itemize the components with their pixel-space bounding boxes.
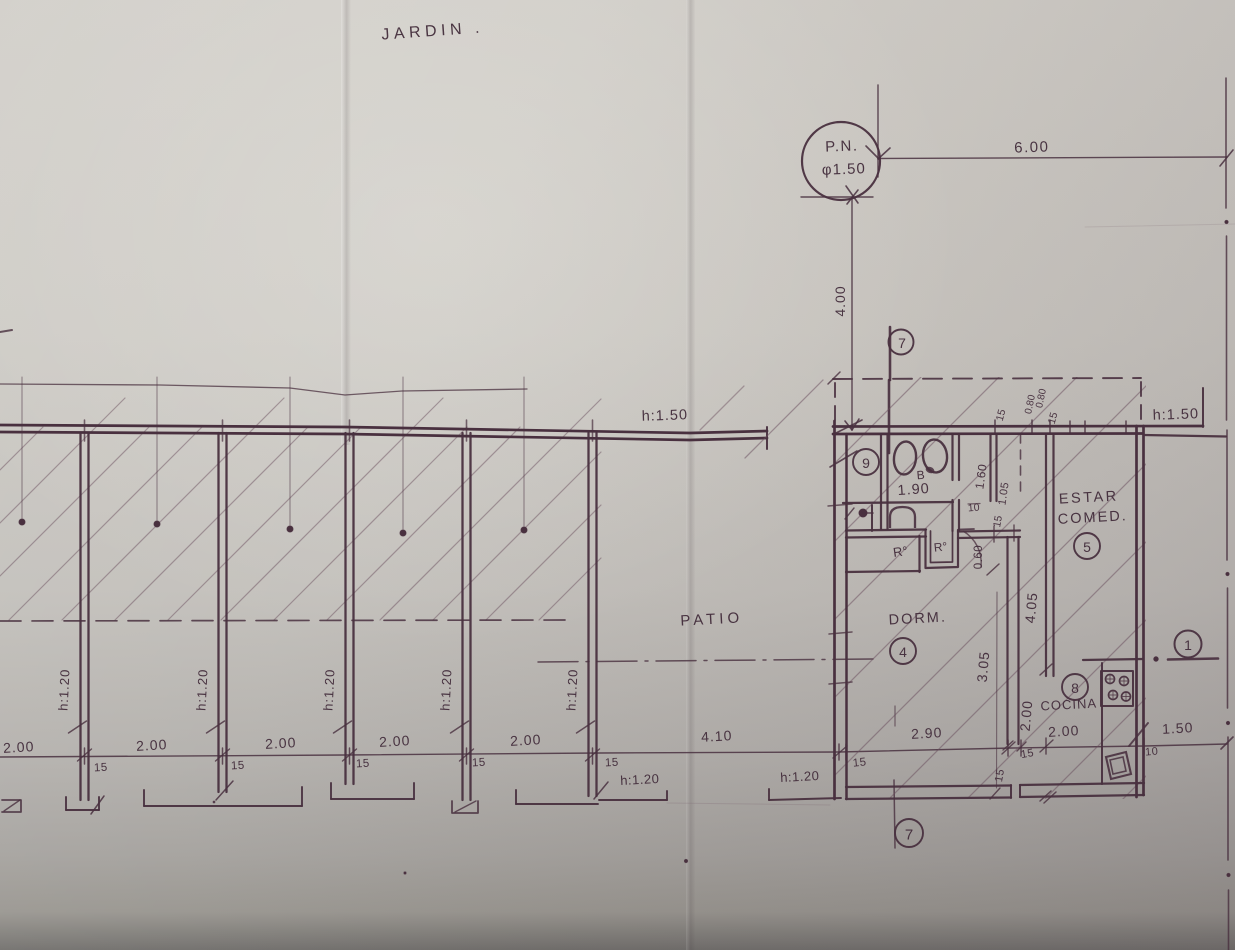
svg-text:15: 15 — [852, 756, 867, 769]
svg-text:7: 7 — [898, 335, 906, 351]
svg-text:2.00: 2.00 — [510, 731, 542, 749]
svg-text:R°: R° — [892, 543, 909, 560]
svg-text:2.00: 2.00 — [136, 736, 168, 754]
svg-text:h:1.20: h:1.20 — [437, 668, 454, 711]
svg-text:h:1.20: h:1.20 — [620, 771, 660, 788]
svg-text:2.00: 2.00 — [1017, 699, 1036, 732]
svg-text:COMED.: COMED. — [1057, 508, 1128, 528]
svg-text:ESTAR: ESTAR — [1059, 488, 1120, 507]
svg-text:1.05: 1.05 — [996, 481, 1011, 506]
svg-text:1.60: 1.60 — [972, 463, 989, 490]
svg-text:4.00: 4.00 — [832, 285, 848, 316]
svg-text:15: 15 — [994, 408, 1009, 423]
svg-text:h:1.20: h:1.20 — [320, 668, 337, 711]
svg-text:1.50: 1.50 — [1162, 719, 1194, 737]
svg-text:2.00: 2.00 — [1048, 722, 1080, 740]
svg-text:φ1.50: φ1.50 — [822, 160, 866, 179]
svg-text:5: 5 — [1083, 539, 1091, 555]
svg-text:h:1.50: h:1.50 — [641, 407, 688, 425]
svg-text:h:1.20: h:1.20 — [55, 668, 72, 711]
svg-text:9: 9 — [862, 455, 870, 471]
svg-text:h:1.20: h:1.20 — [563, 668, 580, 711]
svg-text:h:1.20: h:1.20 — [780, 768, 820, 785]
svg-text:P.N.: P.N. — [825, 137, 859, 155]
svg-text:4.05: 4.05 — [1022, 591, 1041, 624]
svg-text:JARDIN .: JARDIN . — [381, 19, 485, 43]
svg-text:h:1.50: h:1.50 — [1152, 406, 1199, 424]
svg-text:15: 15 — [605, 757, 619, 770]
svg-text:15: 15 — [472, 757, 486, 770]
svg-text:B: B — [916, 468, 925, 483]
svg-text:1.90: 1.90 — [897, 481, 930, 499]
svg-text:2.00: 2.00 — [379, 732, 411, 750]
svg-text:1: 1 — [1184, 637, 1192, 653]
svg-text:10: 10 — [1145, 745, 1159, 758]
svg-text:0.60: 0.60 — [973, 545, 985, 569]
svg-text:0.80: 0.80 — [1034, 387, 1049, 409]
svg-text:3.05: 3.05 — [974, 650, 993, 683]
svg-text:PATIO: PATIO — [680, 609, 744, 629]
svg-text:15: 15 — [231, 760, 245, 773]
svg-text:h:1.20: h:1.20 — [193, 668, 210, 711]
svg-text:2.00: 2.00 — [265, 734, 297, 752]
svg-text:15: 15 — [991, 515, 1005, 529]
svg-text:4: 4 — [899, 644, 907, 660]
svg-text:15: 15 — [1046, 411, 1061, 426]
svg-text:15: 15 — [1020, 747, 1035, 761]
svg-text:7: 7 — [905, 827, 913, 844]
svg-text:DORM.: DORM. — [888, 609, 947, 628]
svg-text:R°: R° — [933, 539, 948, 554]
svg-text:8: 8 — [1071, 680, 1079, 696]
svg-text:2.90: 2.90 — [911, 724, 943, 742]
svg-text:4.10: 4.10 — [701, 727, 733, 745]
svg-text:6.00: 6.00 — [1014, 138, 1050, 156]
svg-text:15: 15 — [356, 758, 370, 771]
svg-text:15: 15 — [94, 762, 108, 775]
svg-text:2.00: 2.00 — [3, 738, 35, 756]
